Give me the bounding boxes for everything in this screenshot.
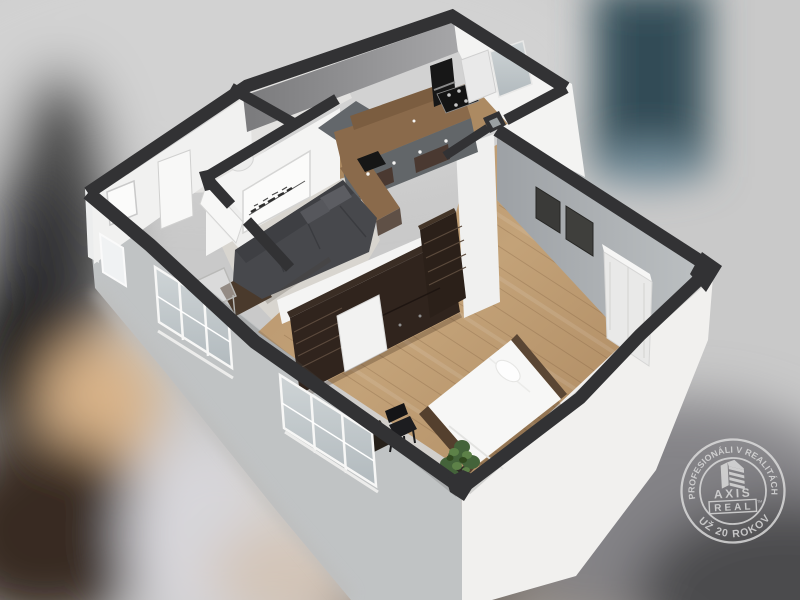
svg-text:TM: TM: [757, 499, 762, 503]
svg-text:REAL: REAL: [714, 501, 754, 514]
